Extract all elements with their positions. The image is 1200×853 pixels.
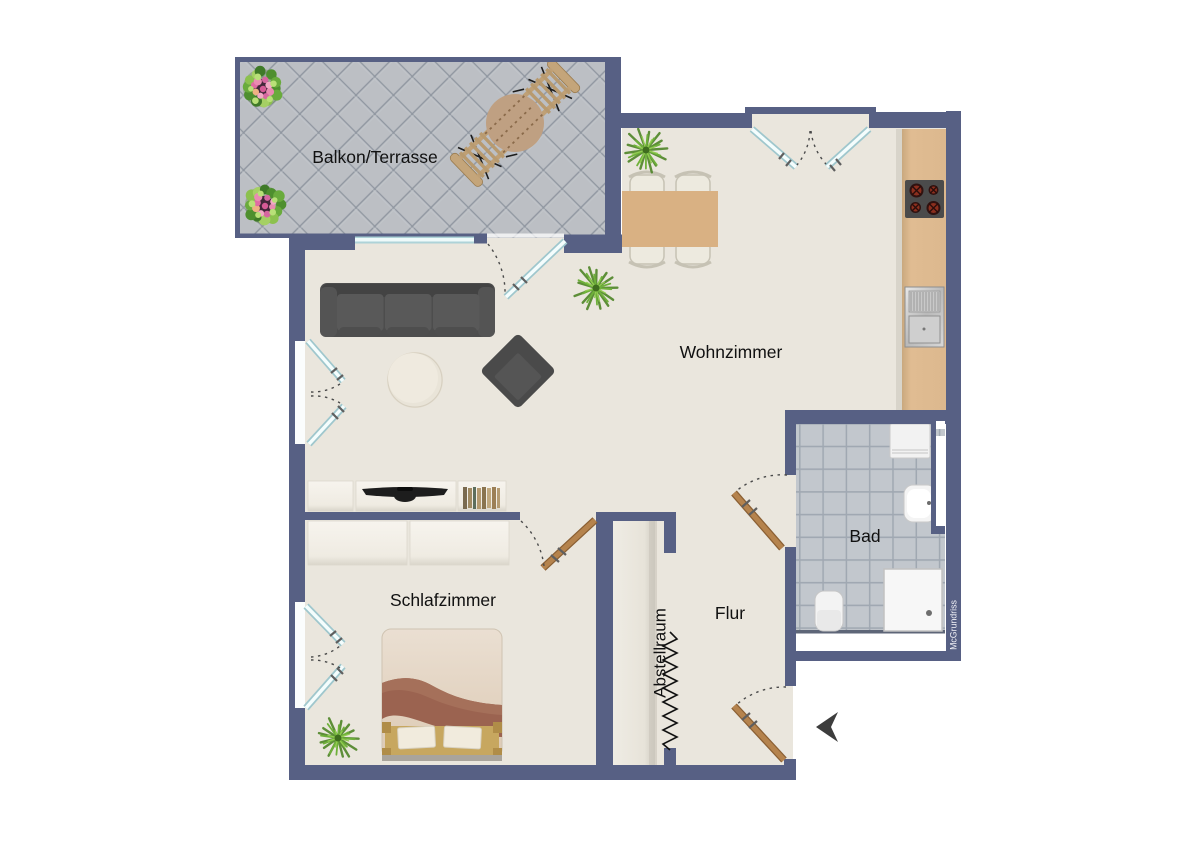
svg-text:Abstellraum: Abstellraum xyxy=(651,608,670,698)
svg-text:McGrundriss: McGrundriss xyxy=(949,599,959,649)
svg-text:Wohnzimmer: Wohnzimmer xyxy=(680,342,783,362)
svg-text:Flur: Flur xyxy=(715,603,745,623)
svg-text:Schlafzimmer: Schlafzimmer xyxy=(390,590,496,610)
svg-text:Balkon/Terrasse: Balkon/Terrasse xyxy=(312,147,437,167)
svg-text:Bad: Bad xyxy=(849,526,880,546)
